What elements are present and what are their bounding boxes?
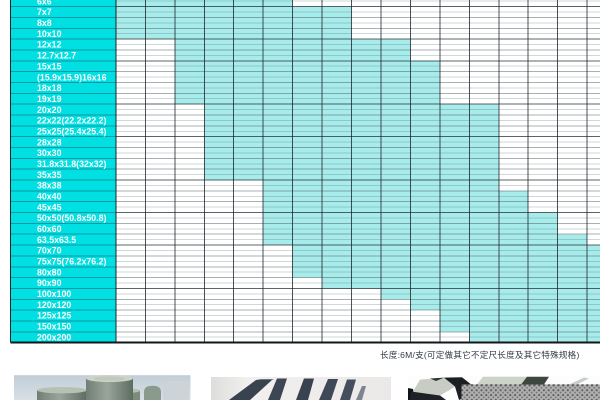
svg-text:125x125: 125x125 <box>37 311 71 321</box>
svg-text:150x150: 150x150 <box>37 322 71 332</box>
svg-text:25x25(25.4x25.4): 25x25(25.4x25.4) <box>37 126 107 136</box>
svg-text:30x30: 30x30 <box>37 148 62 158</box>
svg-text:60x60: 60x60 <box>37 224 62 234</box>
svg-text:22x22(22.2x22.2): 22x22(22.2x22.2) <box>37 116 107 126</box>
svg-text:19x19: 19x19 <box>37 94 62 104</box>
svg-text:200x200: 200x200 <box>37 332 71 342</box>
svg-text:长度:6M/支(可定做其它不定尺长度及其它特殊规格): 长度:6M/支(可定做其它不定尺长度及其它特殊规格) <box>380 349 580 360</box>
svg-text:31.8x31.8(32x32): 31.8x31.8(32x32) <box>37 159 107 169</box>
svg-text:15x15: 15x15 <box>37 61 62 71</box>
svg-text:18x18: 18x18 <box>37 83 62 93</box>
svg-text:40x40: 40x40 <box>37 192 62 202</box>
svg-text:35x35: 35x35 <box>37 170 62 180</box>
svg-text:(15.9x15.9)16x16: (15.9x15.9)16x16 <box>37 72 107 82</box>
svg-text:120x120: 120x120 <box>37 300 71 310</box>
svg-text:75x75(76.2x76.2): 75x75(76.2x76.2) <box>37 257 107 267</box>
svg-text:100x100: 100x100 <box>37 289 71 299</box>
svg-text:10x10: 10x10 <box>37 29 62 39</box>
svg-text:8x8: 8x8 <box>37 18 52 28</box>
svg-text:12x12: 12x12 <box>37 40 62 50</box>
svg-text:45x45: 45x45 <box>37 202 62 212</box>
svg-text:90x90: 90x90 <box>37 278 62 288</box>
svg-text:6x6: 6x6 <box>37 0 52 6</box>
svg-text:70x70: 70x70 <box>37 246 62 256</box>
svg-text:12.7x12.7: 12.7x12.7 <box>37 51 76 61</box>
svg-text:50x50(50.8x50.8): 50x50(50.8x50.8) <box>37 213 107 223</box>
svg-text:63.5x63.5: 63.5x63.5 <box>37 235 76 245</box>
svg-text:28x28: 28x28 <box>37 137 62 147</box>
svg-text:80x80: 80x80 <box>37 267 62 277</box>
svg-text:38x38: 38x38 <box>37 181 62 191</box>
svg-text:20x20: 20x20 <box>37 105 62 115</box>
svg-text:7x7: 7x7 <box>37 7 52 17</box>
